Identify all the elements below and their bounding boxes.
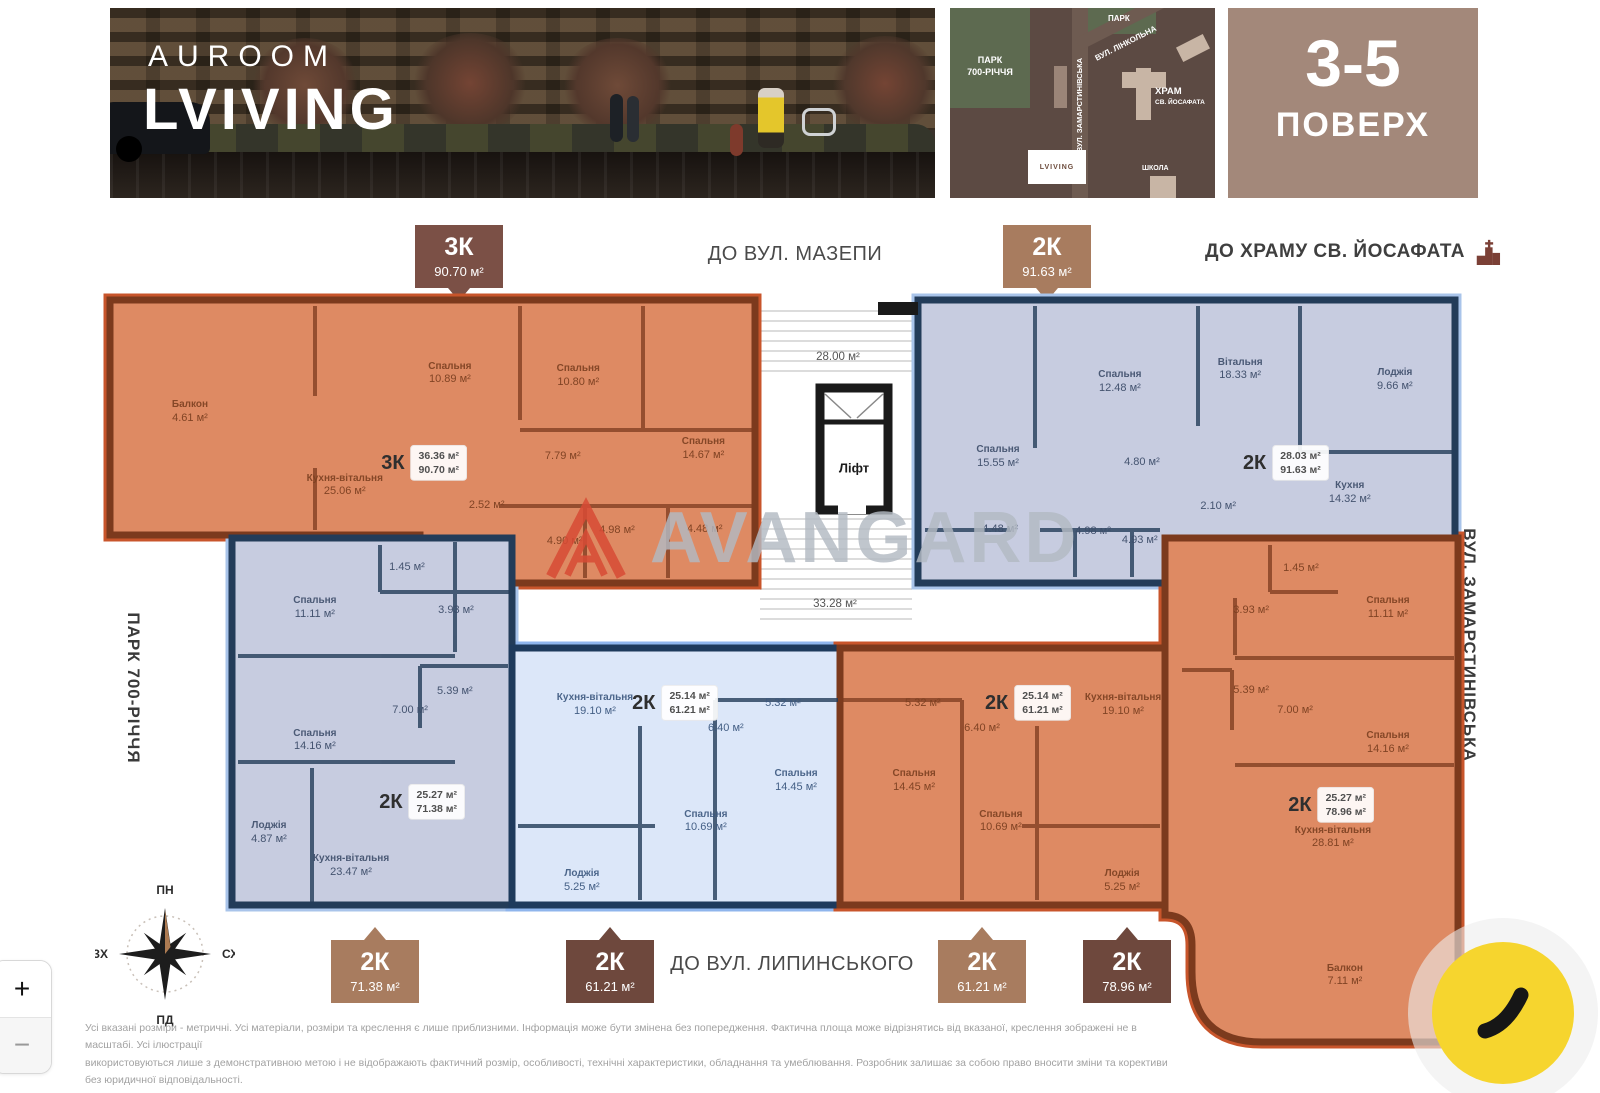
area-label: 4.48 м² bbox=[687, 523, 723, 537]
room-label: Лоджія5.25 м² bbox=[564, 868, 600, 894]
room-label: Кухня-вітальня23.47 м² bbox=[313, 853, 389, 879]
room-label: Спальня10.80 м² bbox=[557, 363, 600, 389]
room-label: Спальня14.45 м² bbox=[774, 768, 817, 794]
area-label: 1.45 м² bbox=[1283, 562, 1319, 576]
room-label: Спальня12.48 м² bbox=[1098, 369, 1141, 395]
room-label: Спальня14.67 м² bbox=[682, 436, 725, 462]
area-label: 2.10 м² bbox=[1200, 500, 1236, 514]
area-label: 5.32 м² bbox=[765, 697, 801, 711]
apartment-type-label[interactable]: 2К25.14 м²61.21 м² bbox=[632, 685, 718, 721]
area-label: 4.80 м² bbox=[1124, 456, 1160, 470]
floorplan-page: AUROOM LVIVING ПАРК700-РІЧЧЯ ПАРК ВУЛ. Л… bbox=[0, 0, 1600, 1093]
room-label: Спальня10.89 м² bbox=[428, 361, 471, 387]
room-label: Кухня-вітальня25.06 м² bbox=[307, 473, 383, 499]
phone-icon bbox=[1471, 981, 1535, 1045]
compass-west-label: ЗХ bbox=[95, 947, 108, 961]
disclaimer: Усі вказані розміри - метричні. Усі мате… bbox=[85, 1020, 1175, 1089]
apartment-type-label[interactable]: 2К25.14 м²61.21 м² bbox=[985, 685, 1071, 721]
apartment-type-label[interactable]: 2К25.27 м²78.96 м² bbox=[1288, 787, 1374, 823]
area-label: 3.93 м² bbox=[438, 604, 474, 618]
room-label: Кухня-вітальня19.10 м² bbox=[1085, 692, 1161, 718]
area-label: 2.52 м² bbox=[469, 499, 505, 513]
room-label: Спальня14.45 м² bbox=[892, 768, 935, 794]
compass-east-label: СХ bbox=[222, 947, 235, 961]
room-label: Спальня14.16 м² bbox=[1366, 730, 1409, 756]
wall-segment bbox=[878, 302, 918, 315]
area-label: 4.93 м² bbox=[1122, 534, 1158, 548]
apartment-type-label[interactable]: 2К25.27 м²71.38 м² bbox=[379, 784, 465, 820]
apartment-type-label[interactable]: 2К28.03 м²91.63 м² bbox=[1243, 445, 1329, 481]
area-label: 4.48 м² bbox=[982, 523, 1018, 537]
area-label: 4.98 м² bbox=[599, 524, 635, 538]
lower-hall-area: 33.28 м² bbox=[813, 598, 857, 610]
room-label: Спальня10.69 м² bbox=[684, 809, 727, 835]
area-label: 1.45 м² bbox=[389, 561, 425, 575]
compass-north-label: ПН bbox=[156, 883, 173, 897]
room-label: Вітальня18.33 м² bbox=[1218, 357, 1263, 383]
room-label: Балкон4.61 м² bbox=[172, 399, 208, 425]
zoom-control: + − bbox=[0, 960, 52, 1074]
room-label: Лоджія9.66 м² bbox=[1377, 367, 1413, 393]
room-label: Кухня-вітальня28.81 м² bbox=[1295, 825, 1371, 851]
area-label: 7.79 м² bbox=[545, 450, 581, 464]
area-label: 6.40 м² bbox=[964, 722, 1000, 736]
room-label: Спальня15.55 м² bbox=[976, 444, 1019, 470]
room-label: Балкон7.11 м² bbox=[1327, 963, 1363, 989]
room-label: Спальня11.11 м² bbox=[293, 595, 336, 621]
floorplan-svg bbox=[0, 0, 1600, 1093]
room-label: Кухня14.32 м² bbox=[1329, 480, 1371, 506]
room-label: Лоджія4.87 м² bbox=[251, 820, 287, 846]
zoom-in-button[interactable]: + bbox=[0, 961, 51, 1017]
compass-rose: ПН СХ ПД ЗХ bbox=[95, 878, 235, 1028]
area-label: 4.98 м² bbox=[1075, 525, 1111, 539]
elevator-shaft bbox=[820, 388, 888, 510]
area-label: 7.00 м² bbox=[392, 704, 428, 718]
room-label: Спальня11.11 м² bbox=[1366, 595, 1409, 621]
upper-hall-area: 28.00 м² bbox=[816, 351, 860, 363]
area-label: 3.93 м² bbox=[1233, 604, 1269, 618]
area-label: 5.32 м² bbox=[905, 697, 941, 711]
zoom-out-button[interactable]: − bbox=[0, 1017, 51, 1074]
call-button[interactable] bbox=[1432, 942, 1574, 1084]
area-label: 7.00 м² bbox=[1277, 704, 1313, 718]
room-label: Лоджія5.25 м² bbox=[1104, 868, 1140, 894]
area-label: 6.40 м² bbox=[708, 722, 744, 736]
area-label: 5.39 м² bbox=[1233, 684, 1269, 698]
area-label: 4.90 м² bbox=[547, 535, 583, 549]
room-label: Спальня10.69 м² bbox=[979, 809, 1022, 835]
elevator-label: Ліфт bbox=[839, 461, 869, 476]
area-label: 5.39 м² bbox=[437, 685, 473, 699]
apartment-type-label[interactable]: 3К36.36 м²90.70 м² bbox=[381, 445, 467, 481]
room-label: Спальня14.16 м² bbox=[293, 728, 336, 754]
room-label: Кухня-вітальня19.10 м² bbox=[557, 692, 633, 718]
